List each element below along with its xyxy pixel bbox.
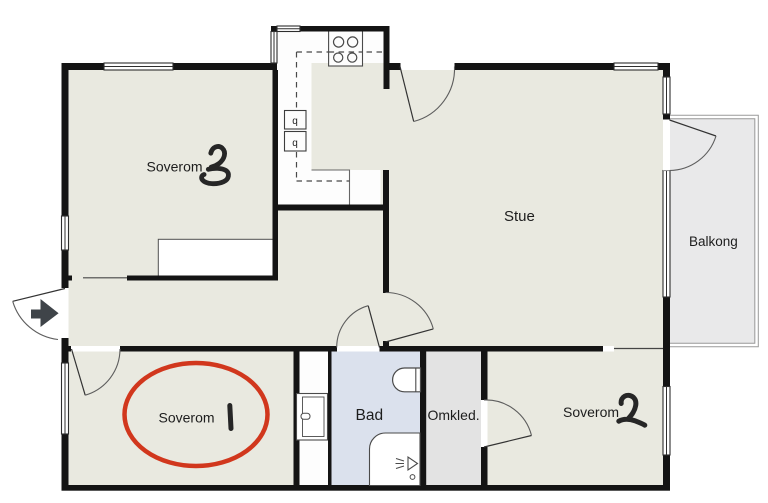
svg-text:q: q — [292, 138, 298, 149]
svg-text:Soverom: Soverom — [563, 404, 619, 420]
svg-text:Stue: Stue — [504, 208, 535, 225]
svg-text:q: q — [292, 116, 298, 127]
svg-text:Balkong: Balkong — [689, 234, 738, 249]
svg-text:Soverom: Soverom — [159, 410, 215, 426]
svg-text:Soverom: Soverom — [147, 159, 203, 175]
svg-text:Omkled.: Omkled. — [428, 407, 480, 423]
svg-text:Bad: Bad — [356, 407, 384, 424]
